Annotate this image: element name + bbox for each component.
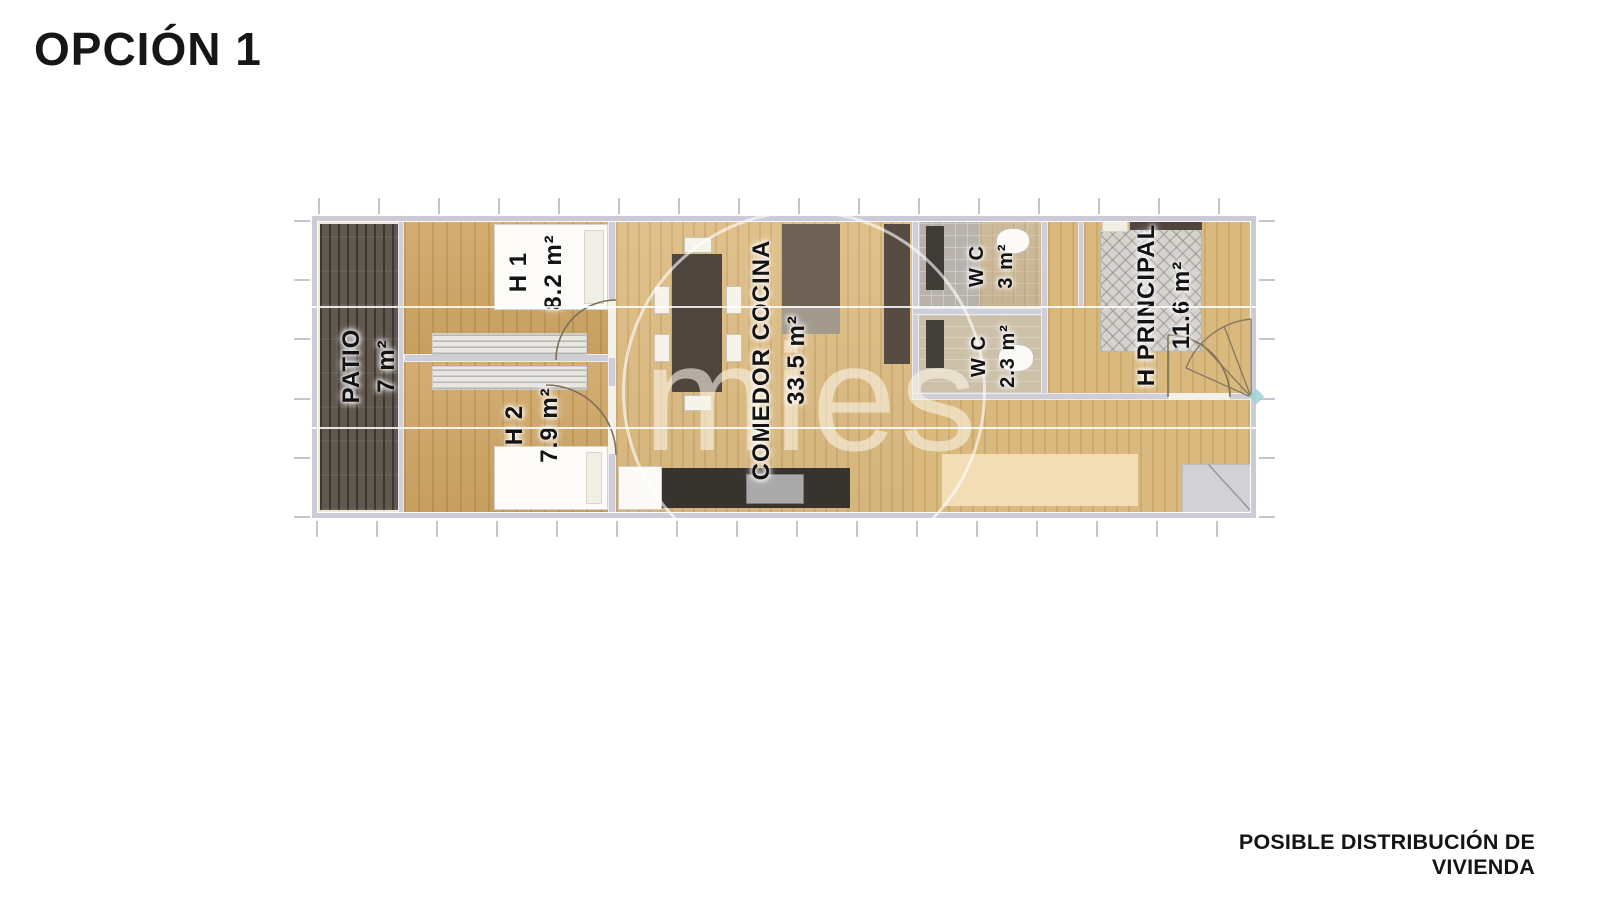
room-label-comedor: COMEDOR COCINA 33.5 m² xyxy=(745,240,815,481)
room-label-wc-bottom: W C 2.3 m² xyxy=(965,324,1023,388)
dimension-tick xyxy=(436,521,438,537)
dimension-tick xyxy=(498,198,500,214)
dimension-tick xyxy=(676,521,678,537)
floor-plan: mies PATIO 7 m² H 1 8.2 m² H 2 7.9 m² CO… xyxy=(312,216,1256,518)
door-opening-h2 xyxy=(608,386,616,454)
room-label-h1: H 1 8.2 m² xyxy=(502,234,572,309)
dimension-tick xyxy=(976,521,978,537)
dimension-tick xyxy=(1096,521,1098,537)
dimension-tick xyxy=(1259,516,1275,518)
scan-line xyxy=(306,306,1291,308)
dimension-tick xyxy=(294,338,310,340)
dimension-tick xyxy=(294,398,310,400)
dimension-tick xyxy=(736,521,738,537)
page: OPCIÓN 1 xyxy=(0,0,1600,900)
dimension-tick xyxy=(294,457,310,459)
dimension-tick xyxy=(858,198,860,214)
dimension-tick xyxy=(618,198,620,214)
dimension-tick xyxy=(1259,457,1275,459)
dimension-tick xyxy=(1156,521,1158,537)
dimension-tick xyxy=(738,198,740,214)
dimension-tick xyxy=(1259,338,1275,340)
door-opening-h1 xyxy=(608,300,616,358)
room-label-principal: H PRINCIPAL 11.6 m² xyxy=(1130,224,1200,387)
dimension-tick xyxy=(1259,279,1275,281)
scan-line xyxy=(306,427,1291,429)
dimension-tick xyxy=(978,198,980,214)
dimension-tick xyxy=(294,220,310,222)
dimension-tick xyxy=(294,516,310,518)
dimension-tick xyxy=(1038,198,1040,214)
dimension-tick xyxy=(558,198,560,214)
door-opening-principal xyxy=(1168,393,1230,400)
dimension-tick xyxy=(378,198,380,214)
dimension-tick xyxy=(918,198,920,214)
dimension-tick xyxy=(1259,220,1275,222)
dimension-tick xyxy=(318,198,320,214)
room-label-patio: PATIO 7 m² xyxy=(335,329,405,404)
dimension-tick xyxy=(438,198,440,214)
dimension-tick xyxy=(1036,521,1038,537)
h1-wardrobe xyxy=(432,333,587,355)
room-label-h2: H 2 7.9 m² xyxy=(498,387,568,462)
dimension-tick xyxy=(798,198,800,214)
dimension-tick xyxy=(678,198,680,214)
dimension-tick xyxy=(1098,198,1100,214)
room-label-wc-top: W C 3 m² xyxy=(963,243,1021,288)
dimension-tick xyxy=(294,279,310,281)
page-title: OPCIÓN 1 xyxy=(34,22,262,76)
dimension-tick xyxy=(496,521,498,537)
dimension-tick xyxy=(616,521,618,537)
dimension-tick xyxy=(1218,198,1220,214)
dimension-tick xyxy=(1216,521,1218,537)
dimension-tick xyxy=(556,521,558,537)
dimension-tick xyxy=(1158,198,1160,214)
dimension-tick xyxy=(376,521,378,537)
caption: POSIBLE DISTRIBUCIÓN DE VIVIENDA xyxy=(1160,830,1535,880)
dimension-tick xyxy=(796,521,798,537)
dimension-tick xyxy=(856,521,858,537)
dimension-tick xyxy=(316,521,318,537)
dimension-tick xyxy=(916,521,918,537)
